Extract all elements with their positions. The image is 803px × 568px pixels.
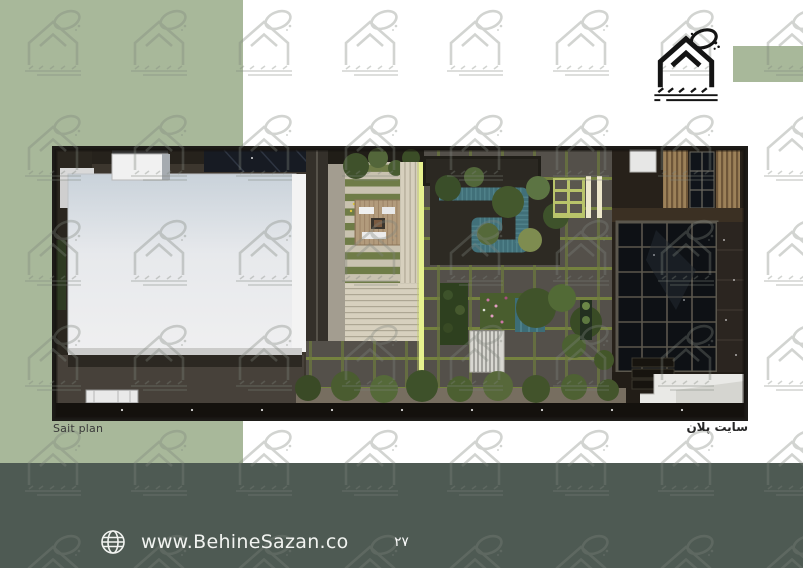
right-building [612, 150, 744, 417]
site-plan-figure [52, 146, 748, 421]
white-building [56, 150, 330, 417]
caption-english: Sait plan [53, 422, 103, 435]
slide-page: Sait plan سایت پلان [0, 0, 803, 568]
house-watermark-icon [435, 5, 515, 100]
caption-persian: سایت پلان [686, 420, 748, 434]
behinesazan-house-logo-icon [646, 26, 726, 110]
house-watermark-icon [752, 110, 803, 205]
house-watermark-icon [752, 215, 803, 310]
site-plan-render [52, 146, 748, 421]
scene [56, 148, 744, 417]
house-watermark-icon [541, 5, 621, 100]
page-number: ۲۷ [0, 534, 803, 550]
top-right-accent-block [733, 46, 803, 82]
house-watermark-icon [330, 5, 410, 100]
brand-logo [646, 26, 726, 110]
house-watermark-icon [752, 320, 803, 415]
